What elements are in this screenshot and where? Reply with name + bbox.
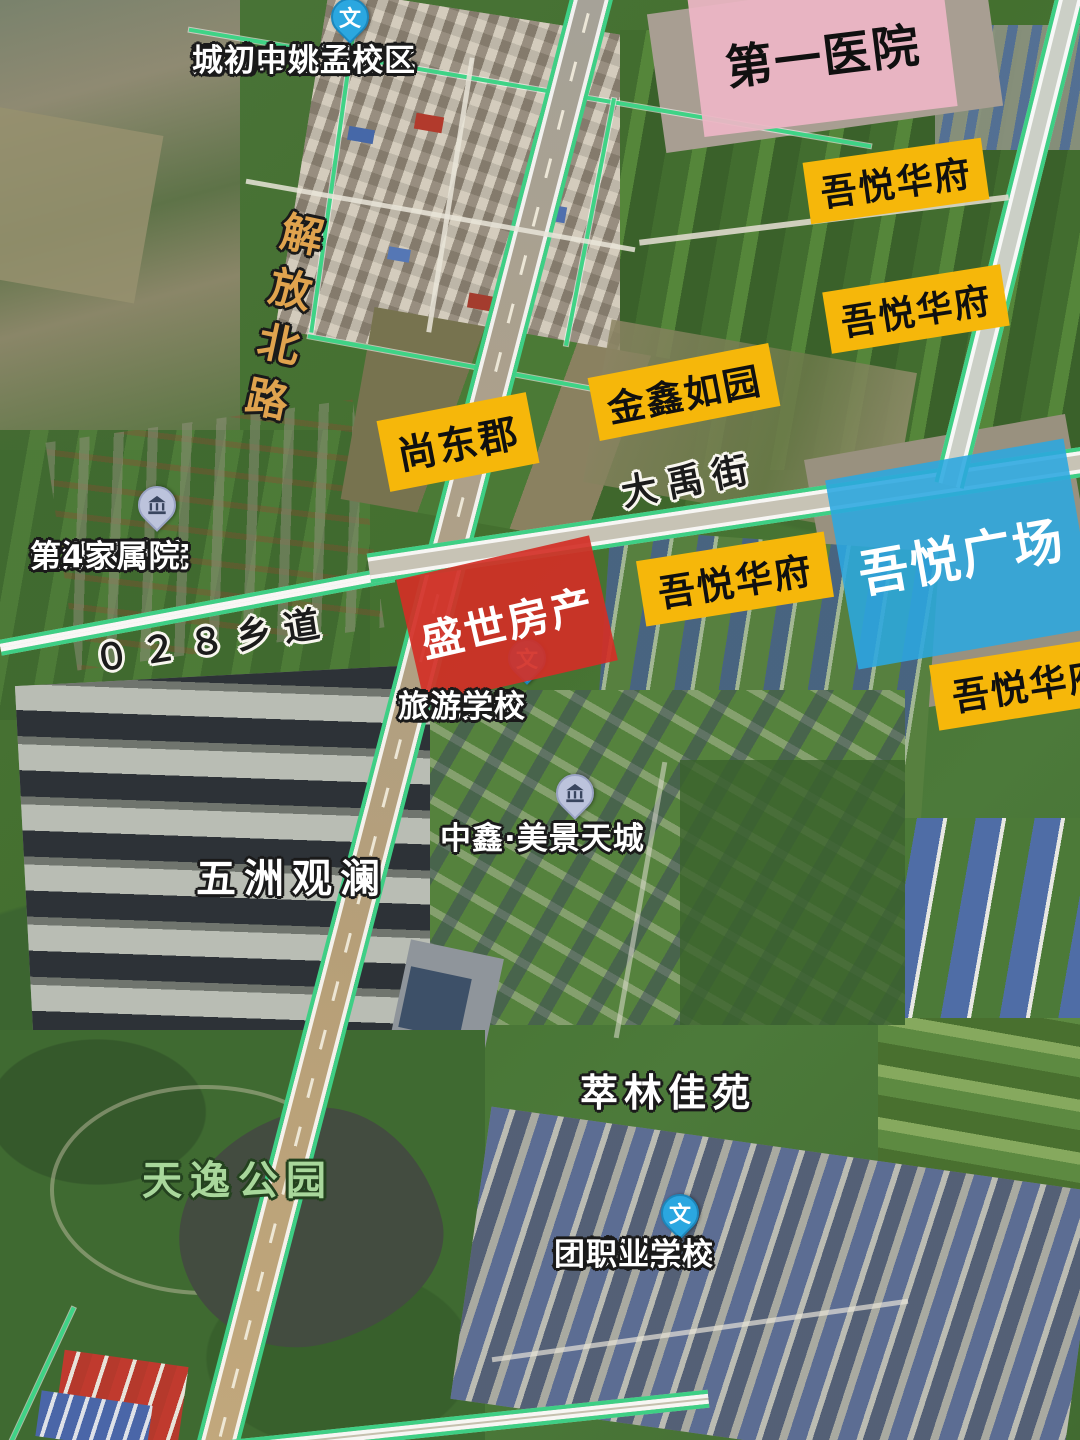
blue-roof	[347, 126, 375, 144]
field-patch-east	[680, 760, 905, 1025]
warehouse-roofs-east	[858, 818, 1080, 1023]
wen-education-icon: 文	[333, 0, 367, 34]
poi-label-wuyue-huafu-3[interactable]: 吾悦华府	[636, 532, 834, 627]
dark-blue-building	[398, 966, 472, 1040]
poi-label-shangdongjun[interactable]: 尚东郡	[377, 392, 540, 492]
poi-label-first-hospital[interactable]: 第一医院	[687, 0, 957, 137]
red-roof	[414, 113, 444, 134]
bank-building-icon	[140, 488, 174, 522]
poi-label-wuyue-huafu-1[interactable]: 吾悦华府	[803, 138, 990, 224]
road-name-jiefangbeilu: 解放北路	[227, 206, 333, 438]
blue-roof-rows	[35, 1390, 152, 1440]
school-pin[interactable]: 文	[323, 0, 377, 44]
farm-fields-southeast	[878, 1018, 1080, 1253]
blue-roof	[387, 246, 411, 263]
village-street	[614, 762, 668, 1039]
plaza-ground	[387, 939, 504, 1071]
village-street	[426, 57, 474, 332]
poi-label-wuyue-plaza[interactable]: 吾悦广场	[825, 438, 1080, 669]
poi-label-jinxin-ruyuan[interactable]: 金鑫如园	[588, 343, 781, 441]
area-name-cuilin-jiayuan: 萃林佳苑	[580, 1062, 756, 1117]
bank-building-icon	[558, 776, 592, 810]
field-patch-west	[0, 430, 370, 720]
parcel-outline	[4, 1307, 75, 1440]
village-roofs-south	[450, 1107, 1080, 1440]
road-east-vertical	[935, 0, 1080, 489]
residence-pin[interactable]	[548, 766, 602, 820]
wen-education-icon: 文	[663, 1196, 697, 1230]
area-name-wuzhou-guanlan: 五洲观澜	[196, 846, 388, 904]
court-residence-pin[interactable]	[130, 478, 184, 532]
area-name-tianyi-park: 天逸公园	[142, 1148, 334, 1206]
residential-area-zhongxin	[430, 690, 905, 1025]
red-roof-rows	[52, 1350, 188, 1440]
school-pin[interactable]: 文	[653, 1186, 707, 1240]
construction-patch	[0, 107, 163, 304]
satellite-map[interactable]: 解放北路 大禹街 ０２８乡道 五洲观澜 萃林佳苑 天逸公园 第一医院 吾悦华府 …	[0, 0, 1080, 1440]
village-street	[492, 1299, 909, 1362]
